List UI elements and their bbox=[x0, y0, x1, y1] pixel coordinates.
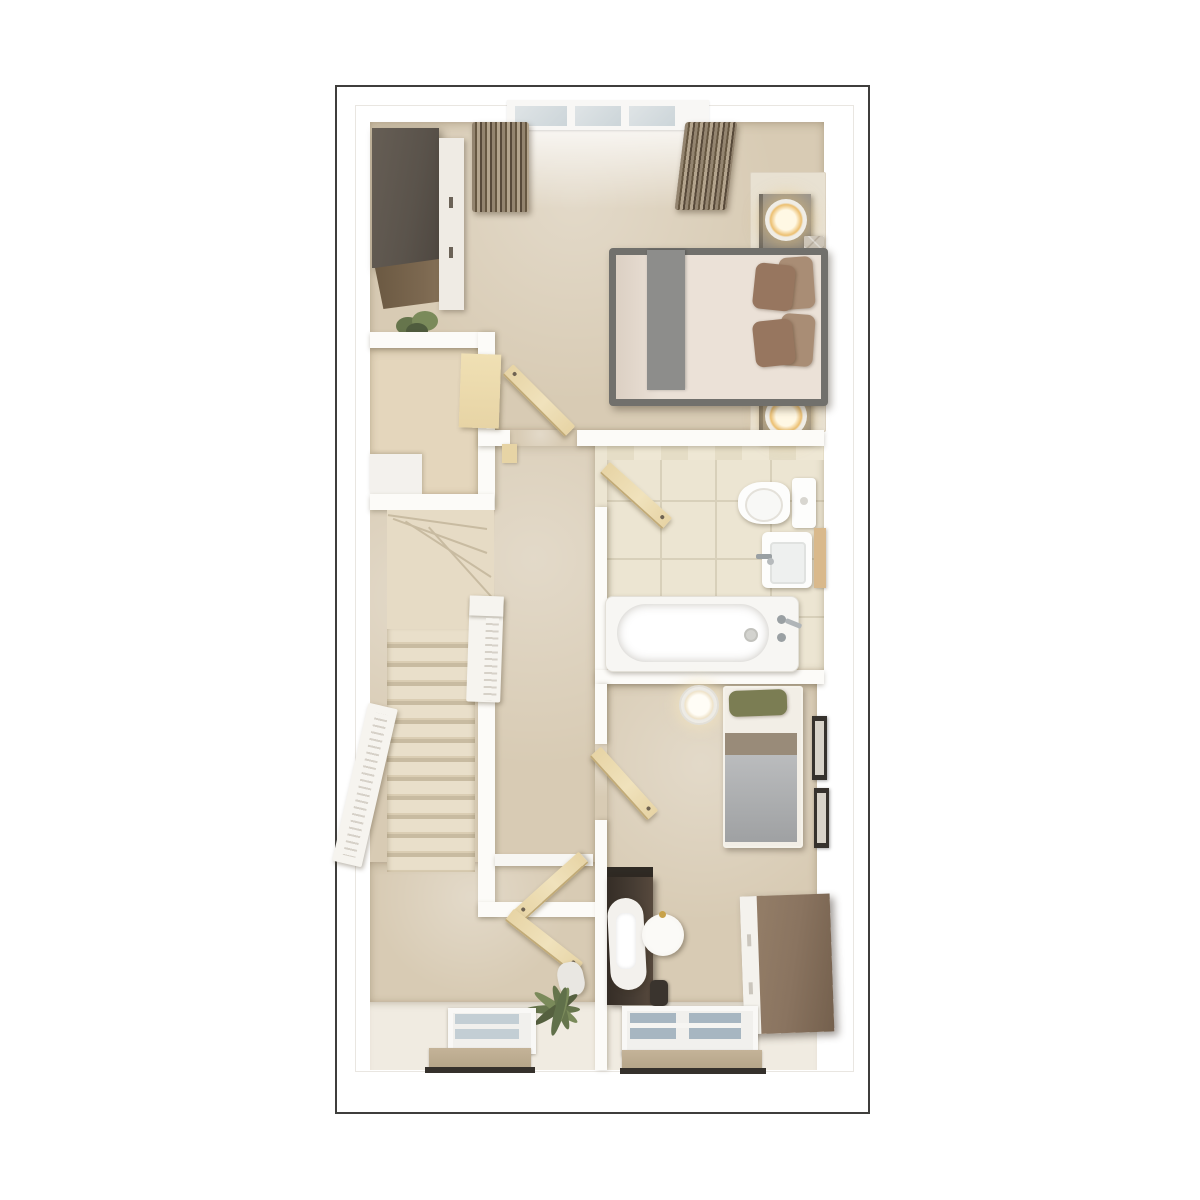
landing-window-pane bbox=[455, 1029, 519, 1039]
bedroom2-left-wall-lower bbox=[595, 820, 607, 1070]
stair-balustrade-newel bbox=[466, 595, 504, 702]
single-bed-pillow bbox=[729, 689, 788, 717]
bedroom1-open-door-panel bbox=[459, 353, 502, 428]
picture-frame bbox=[812, 716, 827, 780]
corridor-wall-vertical bbox=[478, 697, 495, 917]
bed-runner bbox=[647, 250, 685, 390]
stair-void-ledge bbox=[370, 454, 422, 494]
picture-art bbox=[817, 793, 826, 843]
landing-window-pane bbox=[455, 1014, 519, 1024]
floor-plan-frame bbox=[335, 85, 870, 1114]
winder-tread-edge bbox=[428, 527, 498, 604]
bedroom1-window-pane bbox=[575, 106, 621, 126]
wardrobe-handle bbox=[449, 197, 453, 208]
bath-tap bbox=[777, 633, 786, 642]
stair-void-wall-bottom bbox=[370, 494, 494, 510]
bedroom2-radiator bbox=[622, 1050, 762, 1069]
stool bbox=[642, 914, 684, 956]
balustrade-spindles bbox=[483, 618, 499, 700]
table-lamp bbox=[765, 199, 807, 241]
bathroom-bottom-wall bbox=[595, 670, 824, 684]
towel-caddy bbox=[814, 528, 826, 588]
bedroom1-bathroom-wall bbox=[577, 430, 824, 446]
wardrobe-handle bbox=[449, 247, 453, 258]
stool-gold-detail bbox=[659, 911, 666, 918]
bedroom1-window-pane bbox=[629, 106, 675, 126]
toilet-flush-button bbox=[800, 497, 808, 505]
bedroom2-window bbox=[622, 1006, 758, 1056]
door-jamb bbox=[502, 444, 517, 463]
bedroom2-window-mullion bbox=[630, 1023, 741, 1028]
basin-tap-handle bbox=[767, 558, 774, 565]
picture-frame bbox=[814, 788, 829, 848]
toilet-seat bbox=[745, 488, 783, 522]
curtain-right bbox=[675, 122, 738, 210]
staircase-straight-flight bbox=[387, 629, 475, 872]
bedroom2-left-wall-upper bbox=[595, 684, 607, 744]
bed-pillow bbox=[752, 262, 797, 312]
bedroom2-radiator-base bbox=[620, 1068, 766, 1074]
single-bed-duvet bbox=[725, 755, 797, 842]
single-bed-throw bbox=[725, 733, 797, 755]
sideboard-handle bbox=[749, 982, 753, 994]
curtain-left bbox=[472, 122, 529, 212]
picture-art bbox=[815, 721, 824, 775]
newel-post-cap bbox=[469, 595, 504, 616]
floor-plan-canvas bbox=[0, 0, 1200, 1200]
wardrobe-doors bbox=[439, 138, 464, 310]
waste-bin bbox=[650, 980, 668, 1006]
basin-bowl bbox=[770, 542, 806, 584]
landing-radiator bbox=[429, 1048, 531, 1068]
desk-chair-back bbox=[616, 913, 636, 969]
bathroom-tile-border bbox=[607, 444, 824, 460]
bedroom2-bedside-lamp bbox=[679, 685, 719, 725]
wardrobe-top bbox=[372, 128, 439, 268]
sideboard-handle bbox=[747, 934, 751, 946]
landing-radiator-base bbox=[425, 1067, 535, 1073]
bath-drain bbox=[744, 628, 758, 642]
bed-pillow bbox=[752, 318, 797, 368]
stair-void-wall-top bbox=[370, 332, 494, 348]
